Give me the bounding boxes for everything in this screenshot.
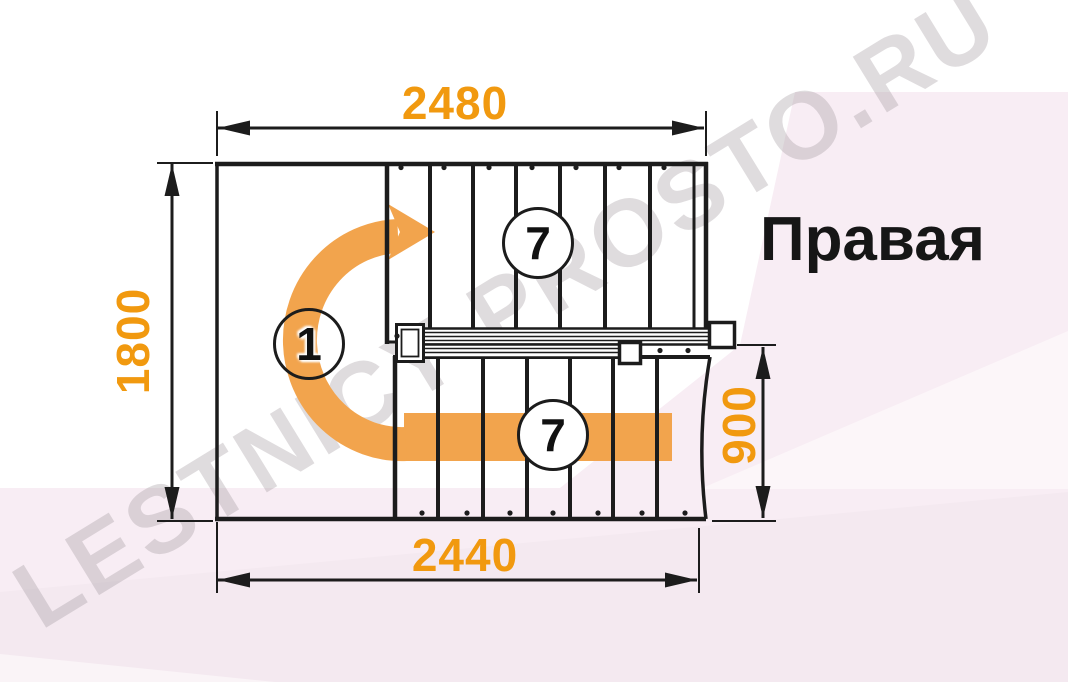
dimension-label-bottom: 2440 <box>385 532 545 578</box>
railing-middle-post <box>620 343 641 364</box>
direction-arrow <box>300 204 672 444</box>
lower-flight-curved-right-edge <box>702 357 710 519</box>
lower-flight-step-count-badge: 7 <box>517 399 589 471</box>
page-title: Правая <box>760 208 985 272</box>
winder-step-count: 1 <box>296 317 322 371</box>
dimension-label-right: 900 <box>716 365 762 485</box>
winder-step-count-badge: 1 <box>273 308 345 380</box>
upper-flight-step-count: 7 <box>525 216 551 270</box>
upper-flight-step-count-badge: 7 <box>502 207 574 279</box>
railing-right-post <box>710 323 735 348</box>
railing-lower-band <box>408 345 640 358</box>
stair-plan-diagram: LESTNICY-PROSTO.RU <box>0 0 1068 682</box>
dimension-left <box>157 163 213 521</box>
lower-flight-step-count: 7 <box>540 408 566 462</box>
dimension-label-left: 1800 <box>110 241 158 441</box>
dimension-label-top: 2480 <box>375 80 535 126</box>
